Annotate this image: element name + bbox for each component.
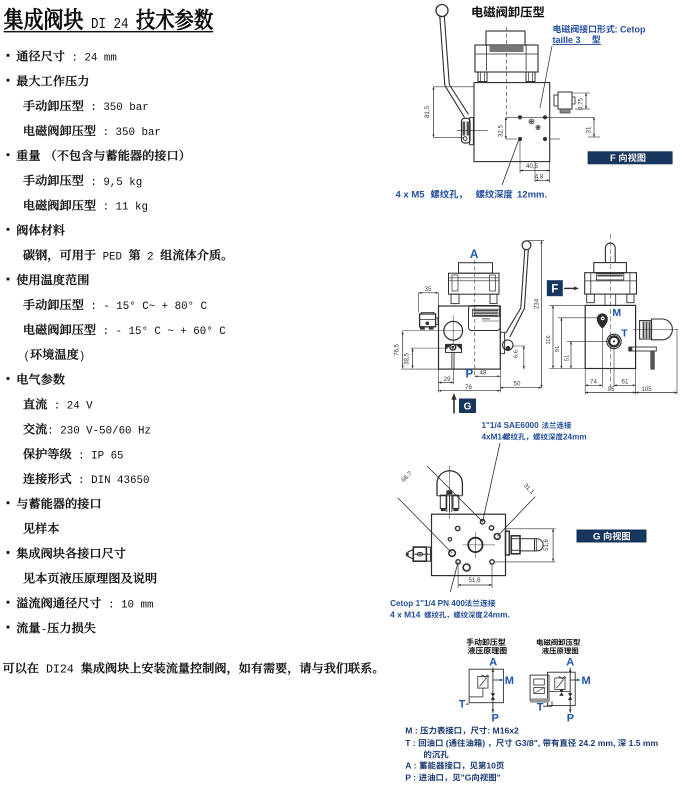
svg-text:": " — [497, 773, 501, 783]
svg-text:DI 24: DI 24 — [84, 17, 136, 33]
svg-text:51,6: 51,6 — [544, 539, 550, 551]
svg-text:P: P — [466, 369, 474, 381]
svg-text:91: 91 — [555, 346, 561, 352]
svg-text:: DIN 43650: : DIN 43650 — [72, 475, 150, 487]
svg-text:(: ( — [443, 738, 448, 748]
svg-text:32,5: 32,5 — [497, 124, 504, 137]
svg-text:24mm: 24mm — [563, 433, 587, 442]
svg-text:4,8: 4,8 — [535, 173, 544, 180]
svg-text:DI24: DI24 — [39, 664, 81, 677]
svg-text:: - 15° C ~ + 60° C: : - 15° C ~ + 60° C — [96, 326, 226, 338]
svg-text:T: T — [459, 699, 466, 711]
svg-text:-: - — [41, 624, 47, 636]
svg-text:74: 74 — [590, 379, 597, 386]
svg-text:10: 10 — [486, 761, 496, 771]
svg-text:51,6: 51,6 — [468, 577, 481, 584]
svg-text:: 24 mm: : 24 mm — [65, 53, 117, 65]
svg-text:50: 50 — [514, 381, 521, 388]
svg-text:: M16x2: : M16x2 — [487, 726, 519, 736]
svg-text:51: 51 — [564, 355, 570, 361]
svg-text:1.5 mm: 1.5 mm — [626, 738, 658, 748]
svg-text:taille 3: taille 3 — [553, 35, 584, 45]
svg-text:31: 31 — [585, 126, 592, 133]
svg-text:T :: T : — [405, 738, 418, 748]
svg-text:234: 234 — [533, 298, 540, 309]
svg-text:PED: PED — [96, 251, 128, 263]
svg-text:61: 61 — [622, 379, 629, 386]
svg-text:12mm.: 12mm. — [517, 190, 547, 201]
svg-text:M: M — [505, 675, 514, 687]
svg-text:76: 76 — [465, 384, 472, 391]
svg-text:P: P — [567, 713, 574, 725]
svg-text:81,5: 81,5 — [424, 105, 431, 118]
svg-text:29: 29 — [444, 376, 451, 383]
svg-text:A: A — [489, 657, 497, 669]
svg-text:F: F — [551, 284, 558, 296]
svg-text:P: P — [492, 713, 499, 725]
svg-text:G3/8",: G3/8", — [513, 738, 543, 748]
svg-text:0,75: 0,75 — [578, 97, 585, 110]
svg-text:A :: A : — [405, 761, 419, 771]
svg-text:(: ( — [24, 351, 30, 363]
svg-text:116: 116 — [546, 335, 552, 344]
svg-text:: 350 bar: : 350 bar — [96, 127, 161, 139]
svg-text:M :: M : — [405, 726, 420, 736]
svg-text:P :: P : — [405, 773, 418, 783]
svg-text:T: T — [621, 328, 628, 340]
svg-text:: 350 bar: : 350 bar — [84, 102, 149, 114]
svg-text:: - 15° C~ + 80° C: : - 15° C~ + 80° C — [84, 301, 208, 313]
svg-text:F: F — [610, 153, 618, 164]
svg-text:): ) — [482, 738, 487, 748]
svg-text:M: M — [582, 675, 591, 687]
svg-text:: IP 65: : IP 65 — [72, 450, 124, 462]
svg-text:95: 95 — [608, 386, 615, 393]
svg-text:24.2 mm,: 24.2 mm, — [576, 738, 618, 748]
svg-text:A: A — [470, 249, 478, 261]
svg-text:: 230 V-50/60 Hz: : 230 V-50/60 Hz — [47, 425, 151, 437]
svg-text:: 10 mm: : 10 mm — [102, 599, 154, 611]
svg-text:105: 105 — [641, 386, 652, 393]
svg-text:2: 2 — [141, 251, 160, 263]
svg-text:): ) — [79, 351, 85, 363]
svg-text:4xM14: 4xM14 — [482, 433, 507, 442]
svg-text:48: 48 — [480, 370, 487, 377]
svg-text:: 11 kg: : 11 kg — [96, 202, 148, 214]
svg-text:"G: "G — [461, 773, 472, 783]
svg-text:24mm.: 24mm. — [481, 610, 510, 620]
svg-text:1"1/4 SAE6000: 1"1/4 SAE6000 — [482, 421, 541, 430]
svg-text:: 24 V: : 24 V — [47, 401, 93, 413]
svg-text:6,6: 6,6 — [514, 350, 520, 358]
svg-text:T: T — [537, 702, 544, 714]
svg-text:A: A — [566, 657, 574, 669]
svg-text:35: 35 — [425, 286, 432, 293]
svg-text:4 x M5: 4 x M5 — [396, 190, 428, 201]
svg-text:: 9,5 kg: : 9,5 kg — [84, 177, 142, 189]
svg-text:G: G — [593, 532, 603, 543]
svg-text:4 x M14: 4 x M14 — [390, 610, 423, 620]
svg-text:Cetop 1"1/4 PN 400: Cetop 1"1/4 PN 400 — [390, 599, 467, 608]
svg-text:40,5: 40,5 — [526, 163, 539, 170]
svg-text:G: G — [464, 402, 472, 413]
svg-text:M: M — [612, 307, 621, 319]
svg-text:38,5: 38,5 — [405, 353, 411, 365]
svg-text:76,5: 76,5 — [395, 344, 401, 356]
svg-text:: Cetop: : Cetop — [615, 24, 646, 34]
